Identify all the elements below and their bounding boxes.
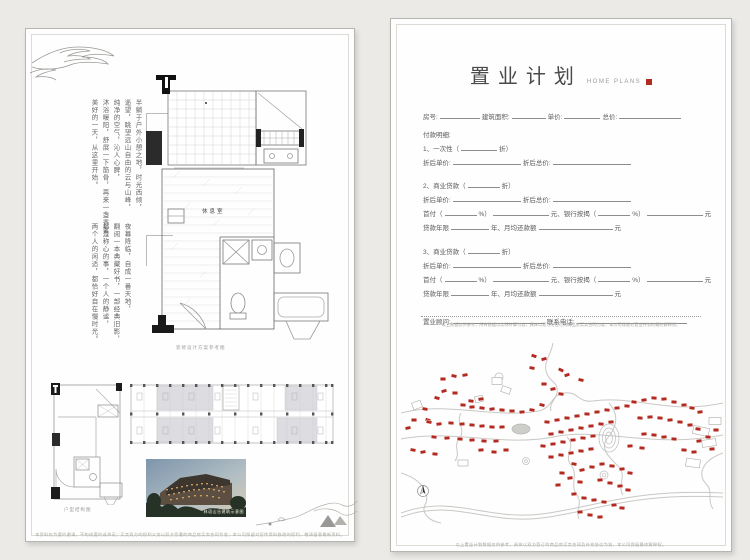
form-row: 房号:建筑面积:单价:总价: [423, 111, 701, 121]
map-unit-marker [451, 374, 457, 378]
plan-caption: 装修设计方案参考图 [176, 345, 226, 351]
map-unit-marker [697, 410, 703, 414]
map-unit-marker [641, 398, 647, 402]
form-label: 折后总价: [523, 263, 551, 270]
form-blank-line [453, 260, 521, 268]
form-blank-line [598, 208, 630, 216]
form-blank-line [598, 274, 630, 282]
form-label: 总价: [602, 114, 617, 121]
form-blank-line [512, 111, 546, 119]
form-label: 首付（ [423, 211, 443, 218]
map-unit-marker [420, 450, 426, 454]
map-unit-marker [637, 416, 643, 420]
map-unit-marker [558, 392, 564, 396]
map-unit-marker [611, 503, 617, 507]
map-unit-marker [529, 408, 535, 412]
form-row: 贷款年限年、月均还款额元 [423, 288, 701, 298]
map-unit-marker [529, 366, 535, 370]
map-unit-marker [432, 452, 438, 456]
form-label: 房号: [423, 114, 438, 121]
map-unit-marker [555, 483, 561, 487]
map-unit-marker [448, 421, 454, 425]
map-unit-marker [695, 427, 701, 431]
map-unit-marker [558, 430, 564, 434]
map-unit-marker [452, 391, 458, 394]
form-label: 元 [615, 291, 622, 298]
map-unit-marker [627, 444, 633, 448]
map-unit-marker [619, 506, 625, 510]
map-building-outline [709, 418, 721, 425]
map-unit-marker [548, 455, 554, 458]
poem-block-2: 夜幕降临，自成一番天地，翻阅一本典藏好书，一部经典旧影，都是称心的事，一个人的静… [88, 223, 132, 343]
map-unit-marker [639, 446, 645, 450]
map-unit-marker [661, 397, 667, 401]
map-unit-marker [588, 447, 594, 451]
map-unit-marker [411, 418, 417, 421]
form-label: 折后单价: [423, 160, 451, 167]
map-unit-marker [581, 496, 587, 500]
map-unit-marker [641, 432, 647, 436]
form-label: 2、商业贷款（ [423, 183, 466, 190]
red-square-icon [646, 79, 652, 85]
photo-caption: 林语山谷建筑示意图 [204, 509, 245, 515]
form-label: 3、商业贷款（ [423, 249, 466, 256]
map-unit-marker [405, 426, 411, 430]
form-label: 年、月均还款额 [491, 225, 537, 232]
map-unit-marker [671, 400, 677, 404]
form-blank-line [453, 157, 521, 165]
map-unit-marker [631, 400, 637, 404]
form-blank-line [451, 222, 489, 230]
map-unit-marker [544, 420, 550, 424]
map-unit-marker [559, 471, 565, 475]
map-unit-marker [597, 515, 603, 519]
poem-line: 夜幕降临，自成一番天地， [121, 223, 132, 343]
map-unit-marker [541, 382, 547, 385]
map-unit-marker [548, 432, 554, 436]
map-building-outline [458, 460, 468, 466]
form-label: 付款明细: [423, 132, 451, 139]
form-label: %） [479, 277, 491, 284]
map-unit-marker [713, 428, 719, 431]
map-unit-marker [661, 435, 667, 439]
map-unit-marker [578, 378, 584, 382]
form-blank-line [468, 180, 500, 188]
map-unit-marker [531, 353, 537, 358]
form-blank-line [539, 288, 613, 296]
form-row: 折后单价:折后总价: [423, 260, 701, 270]
map-unit-marker [580, 436, 586, 440]
cloud-motif-icon [30, 37, 140, 83]
map-unit-marker [709, 447, 715, 451]
map-unit-marker [609, 464, 615, 468]
form-label: %） [479, 211, 491, 218]
map-unit-marker [491, 450, 497, 454]
map-unit-marker [469, 438, 475, 442]
map-unit-marker [539, 403, 545, 408]
form-label: %） [632, 211, 644, 218]
map-unit-marker [687, 423, 693, 427]
map-road [401, 496, 723, 519]
map-unit-marker [619, 467, 625, 471]
map-road [702, 453, 723, 509]
map-unit-marker [705, 435, 711, 439]
map-unit-marker [499, 425, 505, 429]
form-label: 1、一次性（ [423, 146, 459, 153]
map-unit-marker [689, 406, 695, 410]
form-blank-line [553, 260, 631, 268]
map-building-outline [692, 425, 709, 436]
form-label: 元、银行按揭（ [551, 277, 597, 284]
map-unit-marker [422, 407, 428, 411]
form-row: 折后单价:折后总价: [423, 194, 701, 204]
map-unit-marker [457, 437, 463, 441]
form-label: 建筑面积: [482, 114, 510, 121]
map-unit-marker [440, 377, 446, 380]
map-road [401, 492, 723, 515]
brochure-spread: { "left_page": { "poem_block1": [ "半躺于户外… [0, 0, 750, 560]
form-blank-line [553, 194, 631, 202]
map-unit-marker [426, 420, 432, 424]
map-unit-marker [558, 367, 565, 372]
form-label: 折） [502, 183, 515, 190]
form-label: 元 [705, 277, 712, 284]
compass-icon [418, 486, 429, 497]
form-label: 折后总价: [523, 197, 551, 204]
form-blank-line [647, 274, 703, 282]
map-unit-marker [667, 418, 673, 422]
map-unit-marker [564, 372, 570, 377]
left-page-footer: 本资料仅为要约邀请，不构成要约或承诺；买卖双方的权利义务以双方签署的商品房买卖合… [26, 532, 354, 538]
map-unit-marker [460, 403, 466, 407]
poem-line: 半躺于户外小憩之地，时光西倾， [132, 99, 143, 251]
left-page: 半躺于户外小憩之地，时光西倾，遥望，眺望远山自由的云与山峰，纯净的空气，沁人心脾… [25, 28, 355, 542]
map-unit-marker [577, 480, 583, 484]
building-photo: 林语山谷建筑示意图 [146, 459, 246, 517]
page-title: 置业计划 [470, 67, 582, 87]
form-row: 贷款年限年、月均还款额元 [423, 222, 701, 232]
map-unit-marker [691, 450, 697, 454]
form-label: 折） [502, 249, 515, 256]
map-unit-marker [560, 440, 566, 444]
form-row: 首付（%）元、银行按揭（%）元 [423, 208, 701, 218]
map-building-outline [686, 458, 701, 468]
map-unit-marker [625, 488, 631, 492]
form-blank-line [564, 111, 600, 119]
form-label: 年、月均还款额 [491, 291, 537, 298]
map-unit-marker [597, 478, 603, 482]
form-label: 折） [499, 146, 512, 153]
map-unit-marker [657, 416, 663, 420]
map-unit-marker [434, 396, 440, 401]
mountain-motif-icon [254, 487, 358, 535]
map-unit-marker [696, 439, 702, 443]
form-label: 元 [705, 211, 712, 218]
form-label: 折后总价: [523, 160, 551, 167]
map-unit-marker [478, 448, 484, 452]
form-blank-line [647, 208, 703, 216]
map-unit-marker [601, 500, 607, 504]
map-unit-marker [503, 448, 509, 451]
map-unit-marker [651, 433, 657, 437]
map-unit-marker [469, 405, 475, 409]
form-blank-line [619, 111, 681, 119]
form-label: 单价: [548, 114, 563, 121]
map-unit-marker [431, 435, 437, 439]
form-row: 首付（%）元、银行按揭（%）元 [423, 274, 701, 284]
map-unit-marker [540, 444, 546, 448]
form-label: 首付（ [423, 277, 443, 284]
map-unit-marker [579, 468, 585, 472]
form-label: 贷款年限 [423, 225, 449, 232]
form-label: 折后单价: [423, 197, 451, 204]
room-label: 休息室 [202, 207, 225, 215]
right-page: 置业计划 HOME PLANS 房号:建筑面积:单价:总价:付款明细:1、一次性… [390, 18, 732, 552]
map-unit-marker [444, 436, 450, 440]
map-unit-marker [493, 439, 499, 443]
map-unit-marker [578, 449, 584, 453]
form-row: 付款明细: [423, 129, 701, 139]
map-unit-marker [469, 423, 475, 427]
map-unit-marker [489, 425, 495, 429]
map-unit-marker [589, 465, 595, 469]
map-unit-marker [588, 424, 594, 428]
form-note: 以上数据仅供参考，所有数据以实际计算为准，具体以双方所签订的商品房买卖合同为准，… [411, 322, 711, 328]
map-unit-marker [478, 397, 484, 401]
map-unit-marker [410, 448, 416, 452]
poem-line: 都是称心的事，一个人的静谧， [99, 223, 110, 343]
map-unit-marker [571, 462, 577, 466]
purchase-plan-form: 房号:建筑面积:单价:总价:付款明细:1、一次性（折）折后单价:折后总价:2、商… [423, 111, 701, 326]
map-unit-marker [627, 471, 633, 475]
map-unit-marker [578, 426, 584, 430]
map-unit-marker [587, 513, 593, 517]
map-unit-marker [468, 399, 474, 403]
form-row: 1、一次性（折） [423, 143, 701, 153]
form-blank-line [445, 274, 477, 282]
map-unit-marker [677, 420, 683, 424]
map-unit-marker [568, 451, 574, 455]
map-unit-marker [550, 387, 556, 391]
map-unit-marker [598, 422, 604, 426]
map-unit-marker [604, 408, 610, 412]
form-row: 3、商业贷款（折） [423, 246, 701, 256]
form-blank-line [468, 246, 500, 254]
map-road [604, 403, 623, 495]
form-label: 元、银行按揭（ [551, 211, 597, 218]
map-unit-marker [584, 412, 590, 416]
page-subtitle: HOME PLANS [587, 79, 641, 87]
map-building-outline [501, 386, 512, 395]
form-blank-line [539, 222, 613, 230]
map-unit-marker [594, 410, 600, 414]
map-unit-marker [479, 424, 485, 428]
map-unit-marker [681, 448, 687, 452]
map-unit-marker [479, 406, 485, 410]
form-label: 折后单价: [423, 263, 451, 270]
map-unit-marker [671, 437, 677, 441]
form-blank-line [451, 288, 489, 296]
map-building-outline [702, 439, 717, 448]
map-unit-marker [617, 484, 623, 488]
map-unit-marker [577, 510, 583, 514]
form-label: %） [632, 277, 644, 284]
map-unit-marker [564, 416, 570, 420]
map-unit-marker [568, 428, 574, 432]
unit-structure-diagram [44, 379, 134, 505]
map-unit-marker [441, 389, 447, 394]
map-unit-marker [541, 357, 547, 362]
form-blank-line [493, 274, 549, 282]
map-unit-marker [608, 420, 614, 424]
form-label: 元 [615, 225, 622, 232]
map-unit-marker [489, 407, 495, 411]
map-unit-marker [558, 453, 564, 457]
map-unit-marker [459, 422, 465, 426]
masterplan-site-map [401, 343, 723, 543]
form-row: 折后单价:折后总价: [423, 157, 701, 167]
map-unit-marker [567, 476, 573, 480]
unit-floor-plan: 休息室 [144, 63, 344, 343]
map-unit-marker [436, 422, 442, 426]
map-unit-marker [571, 492, 577, 496]
page-title-block: 置业计划 HOME PLANS [391, 67, 731, 87]
map-road [546, 343, 558, 411]
map-unit-marker [599, 462, 605, 466]
structure-caption: 户型结构图 [64, 507, 92, 513]
map-unit-marker [651, 396, 657, 400]
form-blank-line [553, 157, 631, 165]
form-blank-line [461, 143, 497, 151]
form-label: 贷款年限 [423, 291, 449, 298]
poem-line: 翻阅一本典藏好书，一部经典旧影， [110, 223, 121, 343]
map-unit-marker [574, 414, 580, 418]
map-unit-marker [624, 404, 630, 408]
floor-plate-plan [127, 377, 339, 453]
form-blank-line [493, 208, 549, 216]
map-unit-marker [591, 498, 597, 502]
map-unit-marker [481, 439, 487, 443]
map-unit-marker [647, 415, 653, 419]
map-unit-marker [550, 442, 556, 446]
map-unit-marker [614, 406, 620, 410]
poem-line: 两个人的闲适，都恰好自在慢时光。 [88, 223, 99, 343]
map-unit-marker [519, 410, 525, 414]
map-unit-marker [462, 373, 468, 377]
dotted-divider [421, 316, 701, 317]
map-building-outline [492, 378, 502, 385]
map-unit-marker [681, 403, 687, 407]
form-row: 2、商业贷款（折） [423, 180, 701, 190]
form-blank-line [453, 194, 521, 202]
map-unit-marker [590, 434, 596, 438]
form-blank-line [440, 111, 480, 119]
right-page-footer: 以上置业计划数据仅供参考，具体以双方签订的商品房买卖合同及补充协议为准，本公司保… [391, 542, 731, 548]
form-blank-line [445, 208, 477, 216]
map-unit-marker [570, 438, 576, 442]
map-building-outline [412, 400, 423, 410]
map-unit-marker [509, 409, 515, 412]
map-unit-marker [499, 408, 505, 412]
map-unit-marker [607, 481, 613, 485]
map-unit-marker [554, 418, 560, 422]
